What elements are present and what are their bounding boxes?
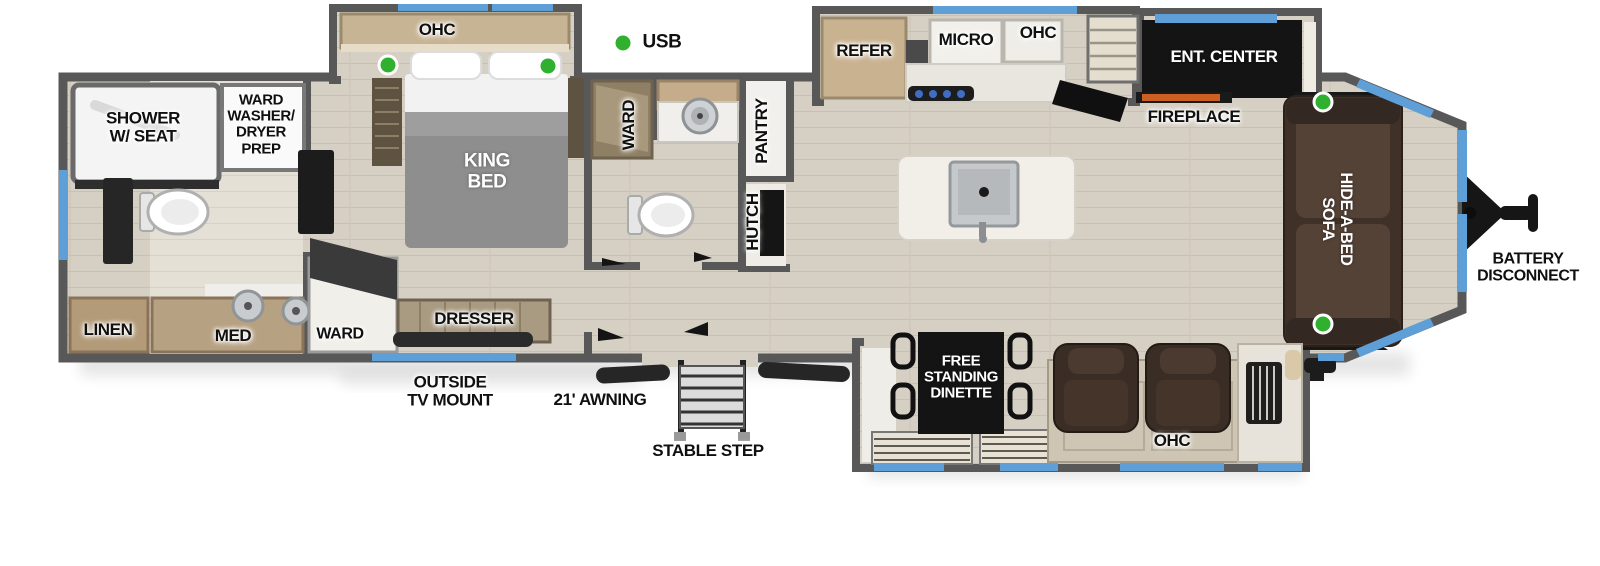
shower-with-seat [73, 85, 219, 182]
kitchen-ohc-cabinet [1004, 20, 1062, 62]
king-bed [405, 52, 568, 248]
washer-dryer-prep-closet [222, 85, 304, 170]
linen-cabinet [70, 298, 148, 352]
side-cabinet [1238, 344, 1302, 462]
refrigerator [822, 18, 906, 98]
kitchen-island [898, 156, 1075, 243]
floorplan-diagram: SHOWER W/ SEAT WARD WASHER/ DRYER PREP L… [0, 0, 1600, 566]
left-nightstand [372, 78, 402, 166]
pantry-hutch [746, 81, 786, 266]
front-living [1284, 92, 1402, 350]
theater-seat-right [1146, 344, 1230, 432]
bath-wardrobe [592, 81, 652, 158]
mid-toilet-icon [628, 194, 693, 236]
entertainment-center [1136, 20, 1316, 103]
med-cabinet [152, 298, 303, 352]
hitch [1462, 172, 1538, 254]
pantry-cabinet [746, 81, 786, 176]
cooktop-icon [908, 86, 974, 101]
rear-toilet-icon [140, 190, 208, 234]
rear-bathroom [70, 81, 309, 354]
bathroom-tv [103, 178, 133, 264]
window-blinds [872, 430, 1056, 464]
interior-steps [1088, 16, 1138, 82]
bedroom-ohc-cabinet [341, 14, 569, 48]
bedroom-tv [298, 150, 334, 234]
theater-seat-left [1054, 344, 1138, 432]
outside-tv-mount-bar [393, 332, 533, 347]
microwave [930, 20, 1002, 66]
stable-step [674, 360, 750, 441]
hide-a-bed-sofa [1284, 96, 1402, 346]
floorplan-drawing [0, 0, 1600, 566]
bath-vanity-sink [658, 81, 738, 142]
